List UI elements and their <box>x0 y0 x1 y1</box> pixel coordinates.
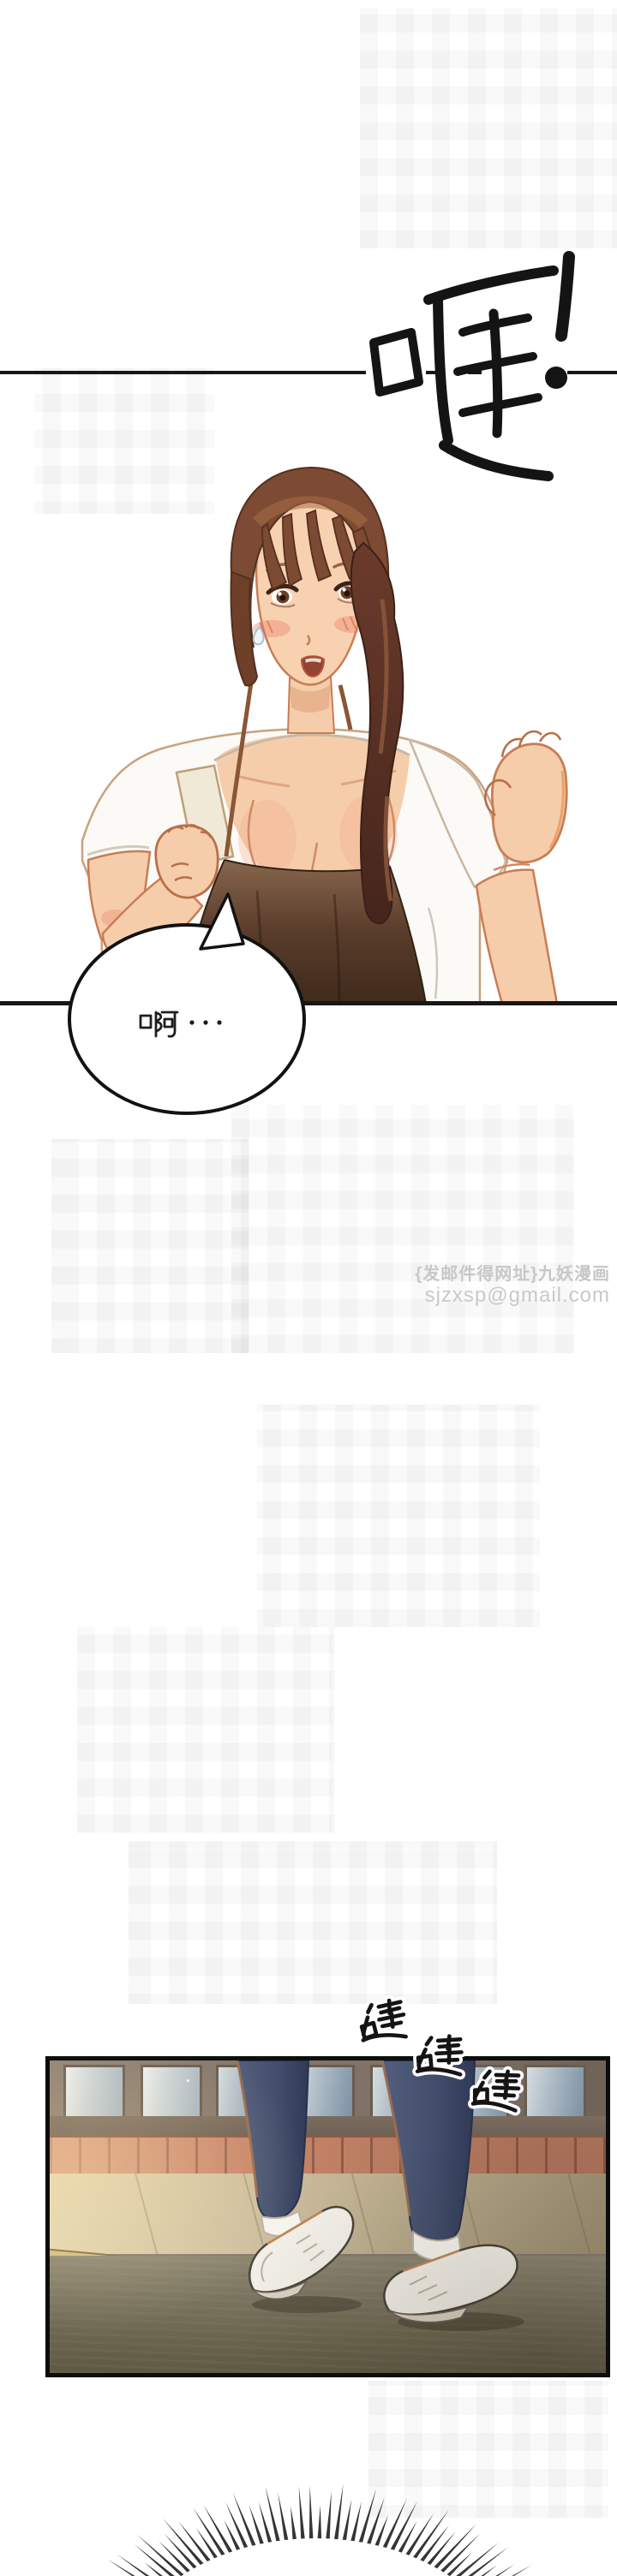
burst-spikes <box>58 2484 566 2576</box>
speech-bubble: 啊… <box>47 886 313 1126</box>
watermark-line2: sjzxsp@gmail.com <box>360 1284 610 1308</box>
sfx-impact-drawing <box>351 240 608 497</box>
sneaker <box>384 2245 517 2315</box>
raised-hand <box>492 744 566 862</box>
qr-watermark-tile <box>231 1105 574 1353</box>
qr-watermark-tile <box>51 1139 249 1353</box>
burst-bubble <box>51 2466 583 2576</box>
sfx-footsteps: 噠噠噠 <box>350 1994 564 2165</box>
exclamation-dot <box>545 367 567 389</box>
qr-watermark-tile <box>360 9 617 248</box>
left-leg <box>237 2060 353 2299</box>
watermark-line1: {发邮件得网址}九妖漫画 <box>360 1265 610 1284</box>
qr-watermark-tile <box>129 1841 497 2004</box>
divider-bottom <box>303 1001 617 1005</box>
comic-page: 哐! <box>0 0 617 2576</box>
qr-watermark-tile <box>77 1627 334 1833</box>
speech-bubble-drawing <box>47 886 313 1126</box>
divider-top <box>0 371 366 374</box>
sfx-impact: 哐! <box>351 240 608 497</box>
qr-watermark-tile <box>257 1404 540 1627</box>
sfx-footsteps-drawing <box>350 1994 564 2165</box>
watermark: {发邮件得网址}九妖漫画 sjzxsp@gmail.com <box>360 1265 610 1308</box>
